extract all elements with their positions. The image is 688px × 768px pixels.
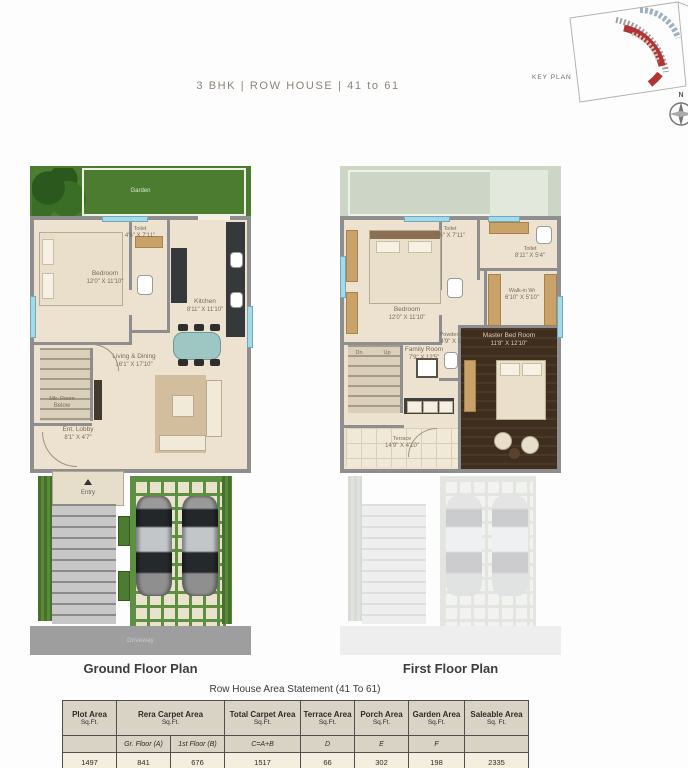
- col-saleable: Saleable AreaSq. Ft.: [465, 701, 529, 736]
- ff-house-shell: Bedroom 12'0" X 11'10" Toilet 4'6" X 7'1…: [340, 216, 561, 473]
- wall: [34, 342, 132, 345]
- pillow: [42, 273, 54, 299]
- gf-parking-area: Entry: [30, 471, 251, 626]
- wall: [480, 268, 557, 271]
- area-statement-table: Plot AreaSq.Ft. Rera Carpet AreaSq.Ft. T…: [62, 700, 529, 768]
- dining-chair: [178, 359, 188, 366]
- car: [182, 496, 218, 596]
- val-terrace: 66: [301, 753, 355, 768]
- ground-floor-plan: Garden Bedroom 12'0" X 11'10" Toi: [30, 166, 251, 655]
- window: [404, 216, 450, 222]
- hedge: [222, 476, 232, 624]
- cushion: [439, 401, 453, 413]
- bed: [369, 230, 441, 304]
- sub-total: C=A+B: [225, 736, 301, 753]
- hedge: [38, 476, 52, 621]
- first-floor-plan: Bedroom 12'0" X 11'10" Toilet 4'6" X 7'1…: [340, 166, 561, 655]
- table-subheader-row: Gr. Floor (A) 1st Floor (B) C=A+B D E F: [63, 736, 529, 753]
- wall: [484, 268, 487, 328]
- room-label-toilet-top: Toilet 4'6" X 7'11": [430, 226, 470, 239]
- stair-note-label: Mtr. Room Below: [40, 396, 84, 409]
- coffee-table: [172, 395, 194, 417]
- stairs-down-label: Dn: [348, 350, 370, 357]
- ground-floor-caption: Ground Floor Plan: [30, 661, 251, 676]
- col-garden: Garden AreaSq.Ft.: [409, 701, 465, 736]
- dining-chair: [210, 324, 220, 331]
- key-plan: KEY PLAN: [528, 0, 688, 138]
- val-garden: 198: [409, 753, 465, 768]
- cushion: [423, 401, 438, 413]
- pillow: [408, 241, 432, 253]
- sub-terrace: D: [301, 736, 355, 753]
- toilet-basin-counter: [489, 222, 529, 234]
- window: [488, 216, 520, 222]
- window: [102, 216, 148, 222]
- staircase: [40, 348, 93, 421]
- wall: [439, 378, 461, 381]
- dining-table: [173, 332, 221, 360]
- window: [247, 306, 253, 348]
- entry-steps: [362, 504, 426, 624]
- val-saleable: 2335: [465, 753, 529, 768]
- dining-chair: [194, 324, 204, 331]
- window: [30, 296, 36, 338]
- val-plot: 1497: [63, 753, 117, 768]
- first-floor-caption: First Floor Plan: [340, 661, 561, 676]
- wall: [132, 330, 170, 333]
- sub-porch: E: [355, 736, 409, 753]
- pillow: [42, 239, 54, 265]
- col-plot-area: Plot AreaSq.Ft.: [63, 701, 117, 736]
- lounge-chair: [521, 436, 539, 454]
- sub-gr-floor: Gr. Floor (A): [117, 736, 171, 753]
- entry-arrow-icon: [84, 479, 92, 485]
- garden-door-opening: [198, 216, 230, 220]
- compass-icon: N: [666, 92, 688, 142]
- toilet-wc: [536, 226, 552, 244]
- val-porch: 302: [355, 753, 409, 768]
- kitchen-island: [171, 248, 187, 303]
- sub-plot: [63, 736, 117, 753]
- lounge-chair: [494, 432, 512, 450]
- bed: [39, 232, 123, 306]
- garden-area: Garden: [30, 166, 251, 220]
- wardrobe: [346, 230, 358, 282]
- room-label-kitchen: Kitchen 8'11" X 11'10": [172, 298, 238, 314]
- compass-rose-icon: [666, 99, 688, 129]
- bedroom-door-arc: [92, 344, 119, 371]
- key-plan-label: KEY PLAN: [532, 74, 572, 81]
- area-statement-title: Row House Area Statement (41 To 61): [62, 684, 528, 695]
- sub-first-floor: 1st Floor (B): [171, 736, 225, 753]
- ground-level-ghost: [340, 471, 561, 655]
- hedge: [348, 476, 362, 621]
- col-total-carpet: Total Carpet AreaSq.Ft.: [225, 701, 301, 736]
- driveway-ghost: [340, 626, 561, 655]
- col-terrace: Terrace AreaSq.Ft.: [301, 701, 355, 736]
- cushion: [407, 401, 422, 413]
- sofa: [206, 380, 222, 437]
- wardrobe: [346, 292, 358, 334]
- toilet-wc: [137, 275, 153, 295]
- room-label-toilet: Toilet 4'6" X 7'11": [120, 226, 160, 239]
- entry-steps: [52, 504, 116, 624]
- window: [340, 256, 346, 298]
- planter: [118, 571, 130, 601]
- gf-house-shell: Bedroom 12'0" X 11'10" Toilet 4'6" X 7'1…: [30, 216, 251, 473]
- master-bed: [496, 360, 546, 420]
- key-plan-map-icon: [528, 0, 688, 138]
- dining-chair: [210, 359, 220, 366]
- car: [492, 496, 528, 596]
- col-porch: Porch AreaSq.Ft.: [355, 701, 409, 736]
- planter: [118, 516, 130, 546]
- room-label-toilet-right: Toilet 8'11" X 5'4": [506, 246, 554, 259]
- terrace-below-band: [340, 166, 561, 220]
- tv-unit: [94, 380, 102, 420]
- entry-porch: Entry: [52, 471, 124, 506]
- side-table: [509, 448, 520, 459]
- terrace-below-patch: [490, 170, 548, 216]
- room-label-master: Master Bed Room 11'8" X 12'10": [466, 332, 552, 348]
- window: [557, 296, 563, 338]
- garden-label: Garden: [30, 188, 251, 194]
- car: [446, 496, 482, 596]
- master-bedroom-floor: [461, 328, 557, 469]
- kitchen-sink: [230, 252, 243, 268]
- val-gr-floor: 841: [117, 753, 171, 768]
- bench-sofa: [404, 398, 454, 414]
- entry-label: Entry: [53, 490, 123, 496]
- sofa: [159, 435, 206, 451]
- room-label-bedroom: Bedroom 12'0" X 11'10": [70, 270, 140, 286]
- dining-chair: [178, 324, 188, 331]
- page-title: 3 BHK | ROW HOUSE | 41 to 61: [108, 80, 488, 92]
- val-first-floor: 676: [171, 753, 225, 768]
- kitchen-counter: [226, 222, 245, 337]
- pillow: [376, 241, 400, 253]
- pillow: [500, 363, 520, 376]
- val-total: 1517: [225, 753, 301, 768]
- wall: [167, 220, 170, 332]
- dining-chair: [194, 359, 204, 366]
- stairs-up-label: Up: [376, 350, 398, 357]
- room-label-bedroom: Bedroom 12'0" X 11'10": [372, 306, 442, 322]
- wall: [477, 220, 480, 280]
- col-rera-carpet: Rera Carpet AreaSq.Ft.: [117, 701, 225, 736]
- table-value-row: 1497 841 676 1517 66 302 198 2335: [63, 753, 529, 768]
- sub-garden: F: [409, 736, 465, 753]
- main-door-arc: [42, 432, 77, 467]
- room-label-walkin: Walk-in Wr 6'10" X 5'10": [496, 288, 548, 301]
- table-header-row: Plot AreaSq.Ft. Rera Carpet AreaSq.Ft. T…: [63, 701, 529, 736]
- dresser: [464, 360, 476, 412]
- compass-north-label: N: [666, 92, 688, 99]
- driveway: Driveway: [30, 626, 251, 655]
- sub-saleable: [465, 736, 529, 753]
- pillow: [522, 363, 542, 376]
- car: [136, 496, 172, 596]
- brochure-page: 3 BHK | ROW HOUSE | 41 to 61 KEY PLAN N …: [0, 0, 688, 768]
- toilet-wc: [447, 278, 463, 298]
